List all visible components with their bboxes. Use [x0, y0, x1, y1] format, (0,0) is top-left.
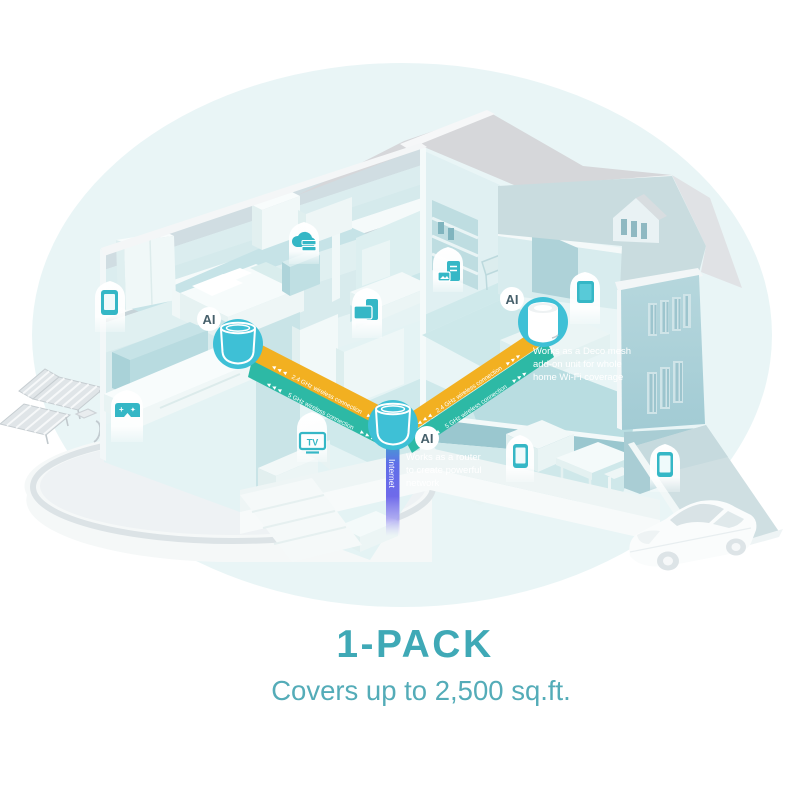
svg-text:Internet: Internet: [387, 459, 397, 488]
svg-text:✦: ✦: [130, 406, 136, 414]
svg-text:1-PACK: 1-PACK: [336, 623, 493, 666]
svg-text:Covers up to 2,500 sq.ft.: Covers up to 2,500 sq.ft.: [271, 675, 571, 706]
svg-text:AI: AI: [506, 292, 519, 307]
svg-text:AI: AI: [203, 312, 216, 327]
svg-text:AI: AI: [421, 431, 434, 446]
svg-text:+: +: [119, 405, 124, 414]
svg-text:Works as a Deco mesh add-on: Works as a Deco mesh add-on unit for who…: [533, 346, 634, 383]
svg-text:TV: TV: [307, 438, 319, 448]
